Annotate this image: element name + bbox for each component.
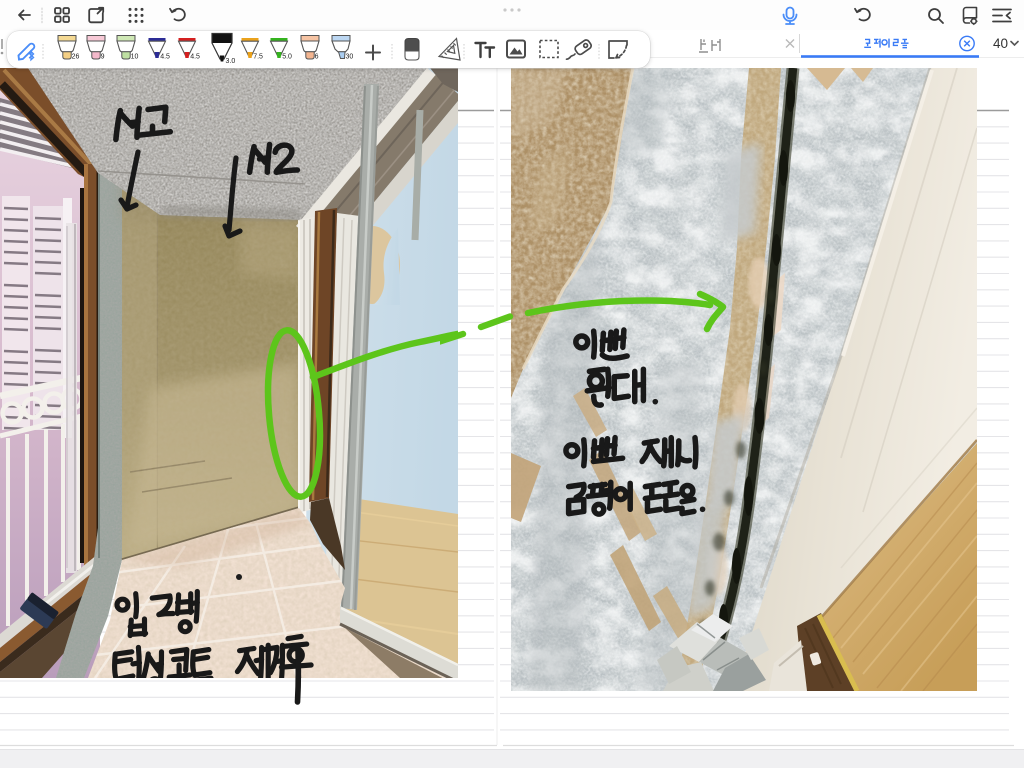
svg-text:6: 6 bbox=[315, 54, 319, 61]
svg-text:4.5: 4.5 bbox=[160, 54, 170, 61]
svg-text:7.5: 7.5 bbox=[253, 54, 263, 61]
svg-text:4.5: 4.5 bbox=[190, 54, 200, 61]
svg-text:3.0: 3.0 bbox=[226, 58, 236, 65]
svg-text:40: 40 bbox=[993, 36, 1008, 51]
svg-text:9: 9 bbox=[101, 54, 105, 61]
svg-text:5.0: 5.0 bbox=[282, 54, 292, 61]
svg-text:10: 10 bbox=[131, 54, 139, 61]
svg-text:30: 30 bbox=[346, 54, 354, 61]
svg-text:26: 26 bbox=[72, 54, 80, 61]
